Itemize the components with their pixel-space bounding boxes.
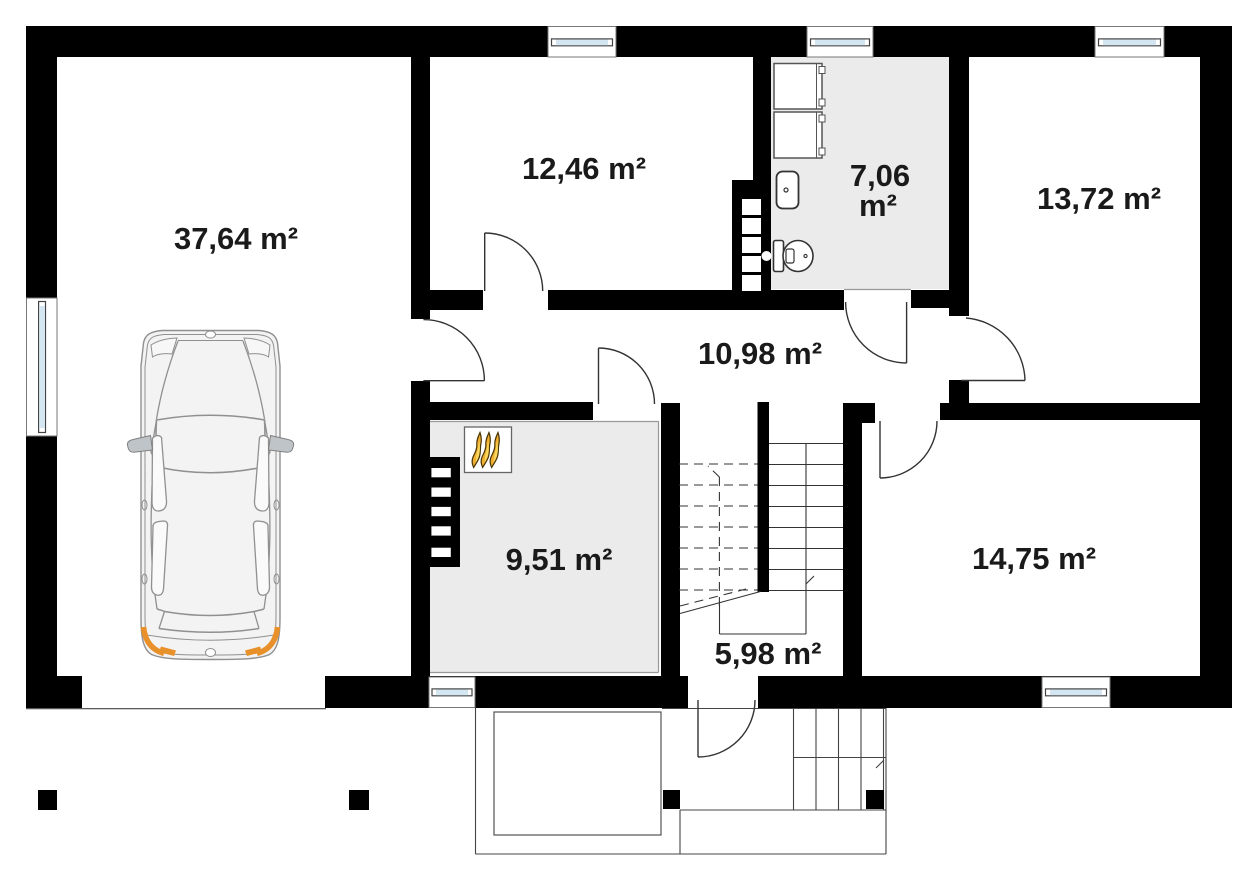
svg-text:37,64 m²: 37,64 m² (174, 221, 298, 256)
svg-text:m²: m² (859, 188, 897, 223)
svg-text:10,98 m²: 10,98 m² (698, 336, 822, 371)
svg-text:14,75 m²: 14,75 m² (972, 541, 1096, 576)
svg-text:9,51 m²: 9,51 m² (506, 542, 613, 577)
svg-text:13,72 m²: 13,72 m² (1037, 181, 1161, 216)
svg-text:5,98 m²: 5,98 m² (715, 636, 822, 671)
svg-text:12,46 m²: 12,46 m² (522, 151, 646, 186)
